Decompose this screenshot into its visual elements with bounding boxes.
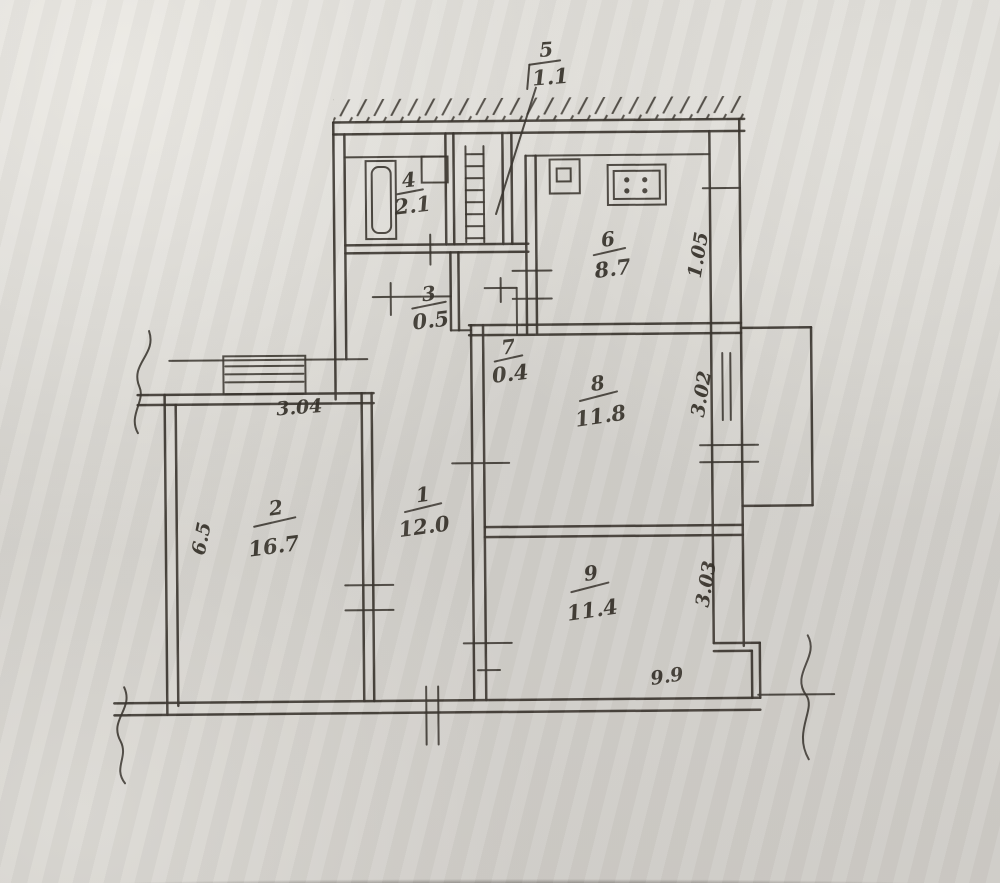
room-8-area: 11.8 <box>573 399 628 431</box>
room-1-label: 1 12.0 <box>393 480 451 542</box>
room-9-number: 9 <box>582 560 599 586</box>
room-3-area: 0.5 <box>411 306 450 335</box>
dimension-kitchen: 1.05 <box>684 230 713 279</box>
bathtub-icon <box>366 161 397 239</box>
floor-plan-photo: 5 1.1 4 2.1 6 8.7 3 0.5 7 0.4 8 <box>0 0 1000 883</box>
balcony-door-tick <box>700 462 758 463</box>
washbasin-icon <box>422 156 448 182</box>
room-2-area: 16.7 <box>247 530 301 562</box>
room-5-label: 5 1.1 <box>523 36 569 91</box>
dimension-room2-depth: 6.5 <box>188 520 216 557</box>
dimension-room9: 3.03 <box>692 559 721 608</box>
room-1-area: 12.0 <box>397 510 451 542</box>
room-9-label: 9 11.4 <box>560 558 620 626</box>
room-8-number: 8 <box>588 370 606 396</box>
room-3-label: 3 0.5 <box>408 280 450 335</box>
room-4-area: 2.1 <box>392 191 432 220</box>
room-7-number: 7 <box>500 334 517 359</box>
balcony <box>699 327 813 506</box>
room-5-number: 5 <box>538 37 554 62</box>
stove-icon <box>608 165 666 206</box>
room-8-label: 8 11.8 <box>569 368 628 432</box>
room-7-label: 7 0.4 <box>488 333 530 388</box>
room-6-number: 6 <box>599 226 616 252</box>
balcony-door-tick <box>700 445 758 446</box>
room-9-area: 11.4 <box>565 594 619 626</box>
dimension-room2-width: 3.04 <box>275 395 323 421</box>
room-6-label: 6 8.7 <box>588 225 633 283</box>
ventilation-ladder-icon <box>465 146 484 242</box>
room-6-area: 8.7 <box>592 253 633 283</box>
dimension-bottom-width: 9.9 <box>649 663 685 690</box>
room-2-number: 2 <box>266 495 284 521</box>
room-5-area: 1.1 <box>531 63 569 91</box>
window-room2 <box>223 356 305 395</box>
room-2-label: 2 16.7 <box>242 493 301 561</box>
kitchen-sink-icon <box>550 159 580 193</box>
room-7-area: 0.4 <box>491 359 530 388</box>
room-4-number: 4 <box>400 167 417 192</box>
floor-plan-drawing: 5 1.1 4 2.1 6 8.7 3 0.5 7 0.4 8 <box>0 0 1000 883</box>
section-mark <box>426 687 427 745</box>
room-3-number: 3 <box>420 281 437 306</box>
room-1-number: 1 <box>414 482 431 508</box>
section-mark <box>438 687 439 745</box>
